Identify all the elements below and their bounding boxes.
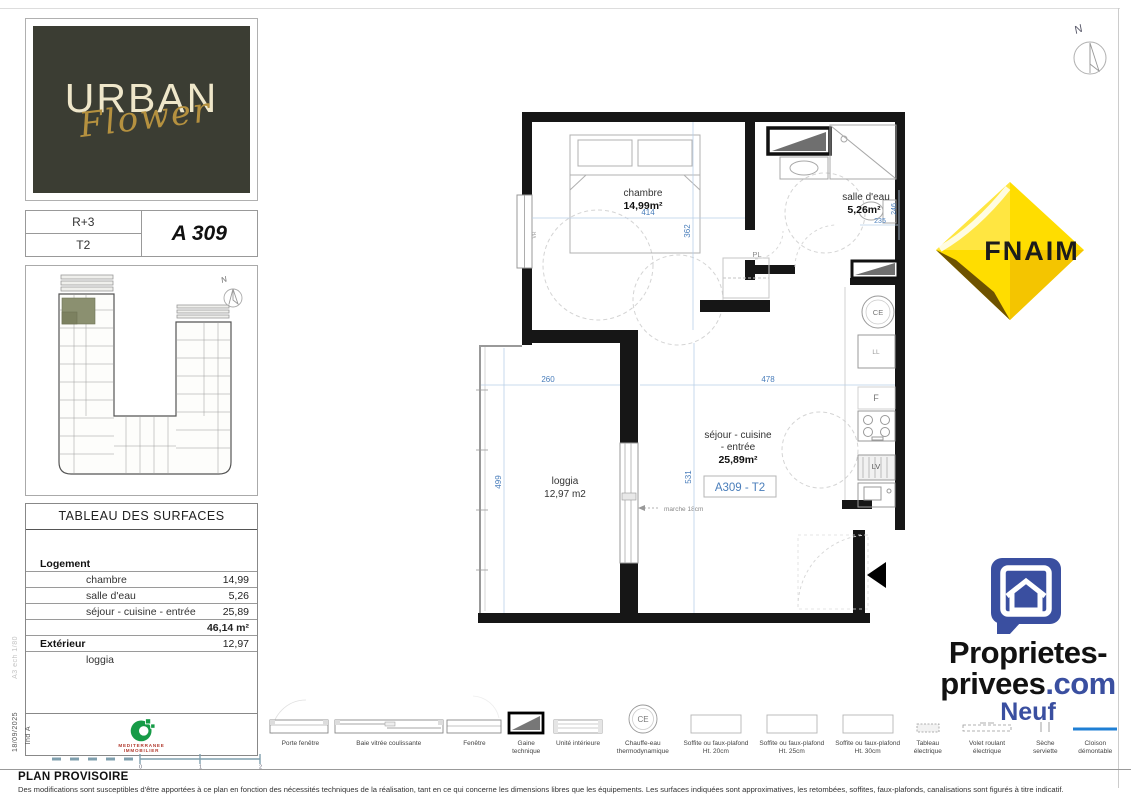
bathroom-door-arc <box>795 225 837 267</box>
unit-type: T2 <box>26 234 141 257</box>
page-frame-top <box>0 8 1120 9</box>
unit-number: A 309 <box>142 211 258 256</box>
surface-row-name: chambre <box>86 574 127 586</box>
table-row: loggia <box>26 652 257 667</box>
legend-label-2: démontable <box>1078 748 1112 756</box>
unit-id-label: A309 - T2 <box>715 482 765 494</box>
surface-row-value: 14,99 <box>223 574 249 586</box>
site-key-plan-svg: N <box>26 266 257 495</box>
legend-soffite-20: Soffite ou faux-plafondHt. 20cm <box>678 692 754 757</box>
legend-label: Soffite ou faux-plafond <box>835 740 900 748</box>
unit-id-box: A309 - T2 <box>704 476 776 497</box>
sheet-scale-note: A3 ech 1/80 <box>12 636 19 679</box>
plan-date: 18/09/2025 <box>12 712 19 752</box>
unite-interieure-icon <box>552 692 604 738</box>
soffite-25-icon <box>764 692 820 738</box>
site-key-plan: N <box>25 265 258 496</box>
room-labels: chambre 14,99m² salle d'eau 5,26m² séjou… <box>532 188 890 500</box>
surface-table: TABLEAU DES SURFACES Logement chambre 14… <box>25 503 258 756</box>
water-heater: CE <box>862 296 894 328</box>
plan-index: Ind A <box>25 726 32 744</box>
site-north-compass: N <box>220 274 242 307</box>
legend-fenetre: Fenêtre <box>445 692 504 748</box>
chambre-label: chambre <box>624 188 663 199</box>
dim-loggia-width: 260 <box>541 375 555 384</box>
legend-label: Soffite ou faux-plafond <box>759 740 824 748</box>
agency-logo-mark <box>129 717 155 743</box>
fnaim-logo: FNAIM <box>928 176 1094 328</box>
table-row: chambre 14,99 <box>26 572 257 588</box>
floor-plan: CE LL F LV <box>268 95 918 695</box>
sejour-area: 25,89m² <box>718 454 758 466</box>
dim-loggia-height: 499 <box>494 475 503 489</box>
surface-row-value: 25,89 <box>223 606 249 618</box>
dim-sde-height: 246 <box>891 203 898 215</box>
plan-sheet: URBAN Flower R+3 T2 A 309 <box>0 0 1131 800</box>
north-compass: N <box>1056 14 1122 86</box>
shower <box>830 125 896 179</box>
surface-total-row: 46,14 m² <box>26 620 257 636</box>
legend-label-2: Ht. 30cm <box>835 748 900 756</box>
north-label: N <box>1073 23 1085 37</box>
legend-label: Fenêtre <box>463 740 485 748</box>
dimension-labels: 414 362 260 478 531 499 246 235 <box>494 203 898 489</box>
surface-group-logement: Logement <box>26 556 257 572</box>
unit-floor-type: R+3 T2 <box>26 211 142 256</box>
legend-baie-vitree: Baie vitrée coulissante <box>333 692 445 748</box>
pp-wordmark-line1: Proprietes- <box>925 639 1131 668</box>
surface-table-title: TABLEAU DES SURFACES <box>26 504 257 530</box>
scale-bar: 0 1 2 <box>48 752 268 769</box>
washing-machine: LL <box>858 335 895 368</box>
volet-roulant-icon <box>960 692 1014 738</box>
cloison-demontable-icon <box>1070 692 1120 738</box>
chauffe-eau-icon: CE <box>621 692 665 738</box>
surface-total-value: 46,14 m² <box>207 622 249 634</box>
surface-group-label: Extérieur <box>40 638 86 650</box>
stove <box>858 411 895 441</box>
loggia-label: loggia <box>552 476 579 487</box>
program-logo-inner: URBAN Flower <box>33 26 250 193</box>
legend-tableau-electrique: Tableauélectrique <box>906 692 950 757</box>
legend-label-2: serviette <box>1033 748 1058 756</box>
legend-label-2: thermodynamique <box>617 748 669 756</box>
legend-porte-fenetre: Porte fenêtre <box>268 692 333 748</box>
step-note: marche 18cm <box>638 505 703 513</box>
washing-machine-label: LL <box>872 349 880 356</box>
salle-eau-area: 5,26m² <box>847 204 881 216</box>
surface-row-value: 12,97 <box>223 638 249 650</box>
soffite-20-icon <box>688 692 744 738</box>
footer-divider <box>0 769 1131 770</box>
water-heater-label: CE <box>873 308 883 317</box>
washbasin <box>780 157 828 179</box>
seche-serviette-icon <box>1034 692 1056 738</box>
walls <box>478 112 905 623</box>
legend-label-2: Ht. 25cm <box>759 748 824 756</box>
legend-label: Chauffe-eau <box>617 740 669 748</box>
legend-label: Soffite ou faux-plafond <box>683 740 748 748</box>
dim-sejour-height: 531 <box>684 470 693 484</box>
chambre-area: 14,99m² <box>623 200 663 212</box>
legend-label: Porte fenêtre <box>282 740 320 748</box>
surface-row-value: 5,26 <box>229 590 249 602</box>
legend: Porte fenêtre Baie vitrée coulissante Fe… <box>268 692 1124 768</box>
fenetre-icon <box>445 692 503 738</box>
porte-fenetre-icon <box>268 692 332 738</box>
legend-label: Cloison <box>1078 740 1112 748</box>
agency-logo: MEDITERRANEE IMMOBILIER <box>26 715 257 755</box>
sejour-label-1: séjour - cuisine <box>704 430 772 441</box>
sejour-label-2: - entrée <box>721 442 756 453</box>
unit-floor: R+3 <box>26 211 141 234</box>
gaine-technique-icon <box>505 692 547 738</box>
legend-label: Baie vitrée coulissante <box>356 740 421 748</box>
surface-table-divider <box>26 713 257 714</box>
baie-vitree-icon <box>333 692 445 738</box>
legend-chauffe-eau: CE Chauffe-eauthermodynamique <box>608 692 678 757</box>
chambre-window <box>517 195 532 268</box>
dim-sde-width: 235 <box>874 218 886 225</box>
legend-label: Gaine <box>512 740 540 748</box>
legend-gaine-technique: Gainetechnique <box>504 692 548 757</box>
legend-label: Sèche <box>1033 740 1058 748</box>
site-highlighted-unit <box>62 298 95 324</box>
tableau-electrique-icon <box>913 692 943 738</box>
legend-label-2: électrique <box>969 748 1005 756</box>
legend-volet-roulant: Volet roulantélectrique <box>950 692 1024 757</box>
program-logo: URBAN Flower <box>25 18 258 201</box>
footer-title: PLAN PROVISOIRE <box>18 771 129 783</box>
pp-logo-bubble <box>925 556 1131 634</box>
entry-arrow <box>867 562 886 588</box>
entry-door <box>798 535 886 609</box>
bay-window <box>620 443 638 563</box>
dimension-lines <box>481 122 899 613</box>
legend-label: Unité intérieure <box>556 740 600 748</box>
dishwasher: LV <box>858 455 895 480</box>
surface-row-name: loggia <box>86 654 114 666</box>
vr-label: VR <box>532 231 538 238</box>
gaine-technique <box>768 128 898 278</box>
table-row: salle d'eau 5,26 <box>26 588 257 604</box>
soffite-30-icon <box>840 692 896 738</box>
surface-table-body: Logement chambre 14,99 salle d'eau 5,26 … <box>26 556 257 667</box>
fnaim-wordmark: FNAIM <box>984 236 1079 266</box>
legend-label: Volet roulant <box>969 740 1005 748</box>
legend-cloison-demontable: Cloisondémontable <box>1067 692 1124 757</box>
legend-soffite-25: Soffite ou faux-plafondHt. 25cm <box>754 692 830 757</box>
legend-unite-interieure: Unité intérieure <box>548 692 607 748</box>
closet-label: PL <box>752 250 761 259</box>
legend-label-2: Ht. 20cm <box>683 748 748 756</box>
surface-row-name: séjour - cuisine - entrée <box>86 606 196 618</box>
loggia-area: 12,97 m2 <box>544 489 586 500</box>
dim-sejour-width: 478 <box>761 375 775 384</box>
fridge-label: F <box>873 393 879 403</box>
legend-soffite-30: Soffite ou faux-plafondHt. 30cm <box>830 692 906 757</box>
legend-label-2: technique <box>512 748 540 756</box>
fridge: F <box>858 387 895 409</box>
surface-row-name: salle d'eau <box>86 590 136 602</box>
site-north-label: N <box>220 274 228 284</box>
legend-seche-serviette: Sècheserviette <box>1024 692 1067 757</box>
chauffe-eau-symbol-text: CE <box>637 715 648 724</box>
footer-disclaimer: Des modifications sont susceptibles d'êt… <box>18 785 1123 794</box>
table-row: séjour - cuisine - entrée 25,89 <box>26 604 257 620</box>
surface-group-exterieur: Extérieur 12,97 <box>26 636 257 652</box>
unit-info-table: R+3 T2 A 309 <box>25 210 258 257</box>
salle-eau-label: salle d'eau <box>842 192 890 203</box>
step-note-label: marche 18cm <box>664 506 703 513</box>
dim-chambre-height: 362 <box>683 224 692 238</box>
legend-label: Tableau <box>914 740 942 748</box>
legend-label-2: électrique <box>914 748 942 756</box>
surface-group-label: Logement <box>40 558 90 570</box>
dishwasher-label: LV <box>872 462 881 471</box>
